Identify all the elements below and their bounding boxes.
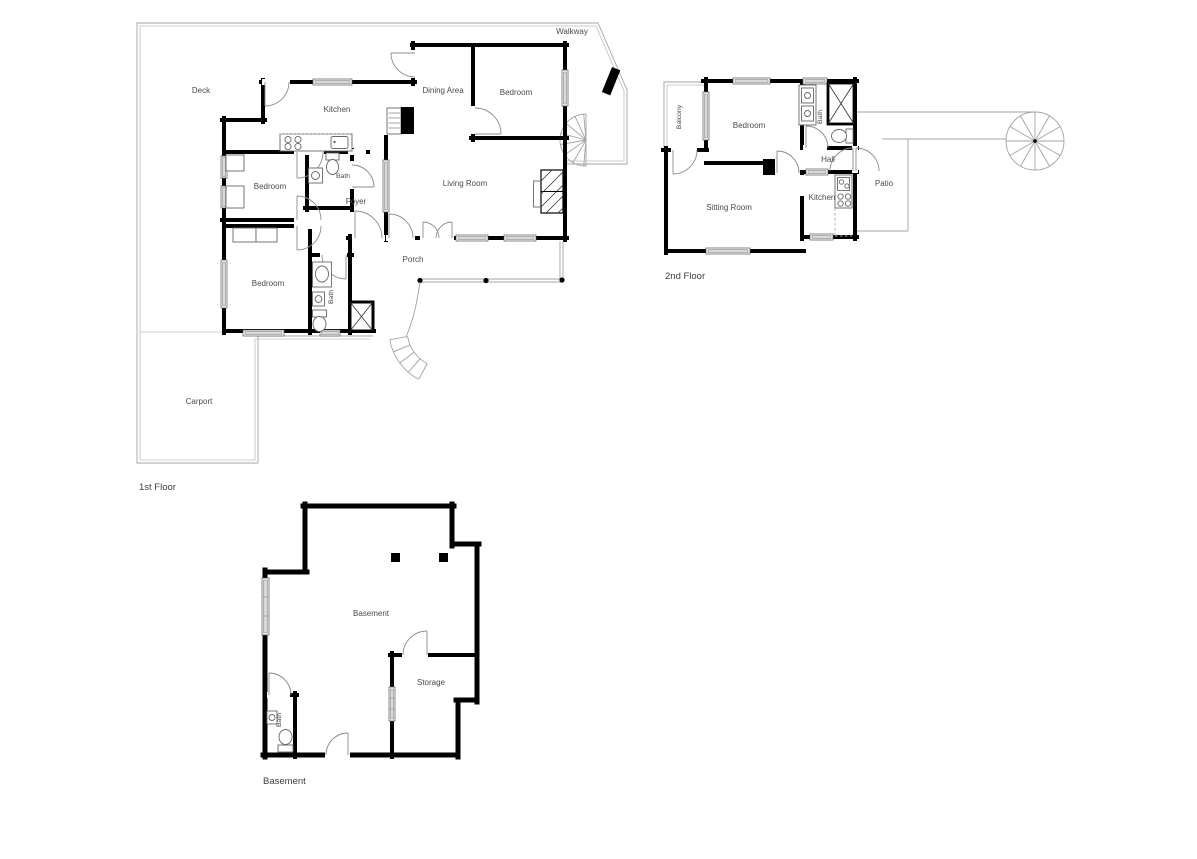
bathroom-fixtures (799, 83, 854, 143)
room-label-bedroom-ne: Bedroom (500, 88, 533, 97)
room-label-bath-lower: Bath (328, 290, 335, 304)
room-label-foyer: Foyer (346, 197, 367, 206)
toilet-icon (313, 310, 327, 332)
kitchen-counter-icon (835, 175, 852, 236)
room-label-carport: Carport (186, 397, 213, 406)
toilet-icon (326, 153, 339, 175)
room-label-basement-bath: Bath (276, 713, 283, 727)
bathroom-fixtures (309, 153, 340, 183)
windows (262, 578, 395, 721)
room-label-bedroom-sw: Bedroom (252, 279, 285, 288)
room-label-deck: Deck (192, 86, 211, 95)
room-label-hall: Hall (821, 155, 835, 164)
basement-floor-plan: Basement Storage Bath Basement (262, 504, 479, 787)
room-label-basement: Basement (353, 609, 390, 618)
room-label-bedroom: Bedroom (733, 121, 766, 130)
fireplace-icon (534, 170, 564, 213)
sink-icon (802, 106, 814, 121)
walkway-gate-icon (602, 67, 620, 95)
basement-walls (263, 504, 479, 757)
room-label-kitchen: Kitchen (324, 105, 351, 114)
floor-label-second: 2nd Floor (665, 271, 705, 282)
toilet-icon (832, 129, 854, 143)
kitchen-sink-icon (838, 178, 850, 191)
floor-label-first: 1st Floor (139, 482, 176, 493)
spiral-stairs-icon (1006, 112, 1064, 170)
room-label-living-room: Living Room (443, 179, 488, 188)
door-gaps (267, 652, 428, 758)
sink-icon (309, 168, 323, 183)
sink-icon (802, 88, 814, 103)
floor-plan-page: Walkway Deck Kitchen Dining Area Bedroom… (0, 0, 1197, 859)
curved-steps-icon (390, 337, 427, 380)
balcony-railing (664, 82, 706, 149)
room-label-sitting-room: Sitting Room (706, 203, 752, 212)
shower-icon (350, 302, 373, 331)
shower-icon (828, 83, 854, 124)
room-label-walkway: Walkway (556, 27, 588, 36)
second-floor-plan: Balcony Bedroom Bath Hall Patio Sitting … (663, 78, 1064, 282)
first-floor-plan: Walkway Deck Kitchen Dining Area Bedroom… (137, 23, 627, 493)
floor-label-basement: Basement (263, 776, 306, 787)
column-post (391, 553, 400, 562)
pantry-closet-icon (387, 107, 414, 134)
porch-railing (406, 241, 565, 337)
room-label-dining-area: Dining Area (422, 86, 464, 95)
kitchen-counter-icon (280, 134, 352, 151)
room-label-storage: Storage (417, 678, 446, 687)
room-label-bedroom-w: Bedroom (254, 182, 287, 191)
column-post (439, 553, 448, 562)
toilet-icon (278, 730, 293, 753)
room-label-porch: Porch (403, 255, 424, 264)
floor-plan-canvas: Walkway Deck Kitchen Dining Area Bedroom… (0, 0, 1197, 859)
room-label-kitchen2: Kitchen (809, 193, 836, 202)
sink-icon (313, 292, 325, 306)
room-label-patio: Patio (875, 179, 894, 188)
closet-icons (226, 155, 277, 242)
room-label-bath: Bath (817, 110, 824, 124)
vanity-icon (313, 262, 332, 287)
room-label-balcony: Balcony (676, 104, 683, 129)
room-label-bath-main: Bath (336, 173, 350, 180)
kitchen-sink-icon (331, 137, 348, 149)
